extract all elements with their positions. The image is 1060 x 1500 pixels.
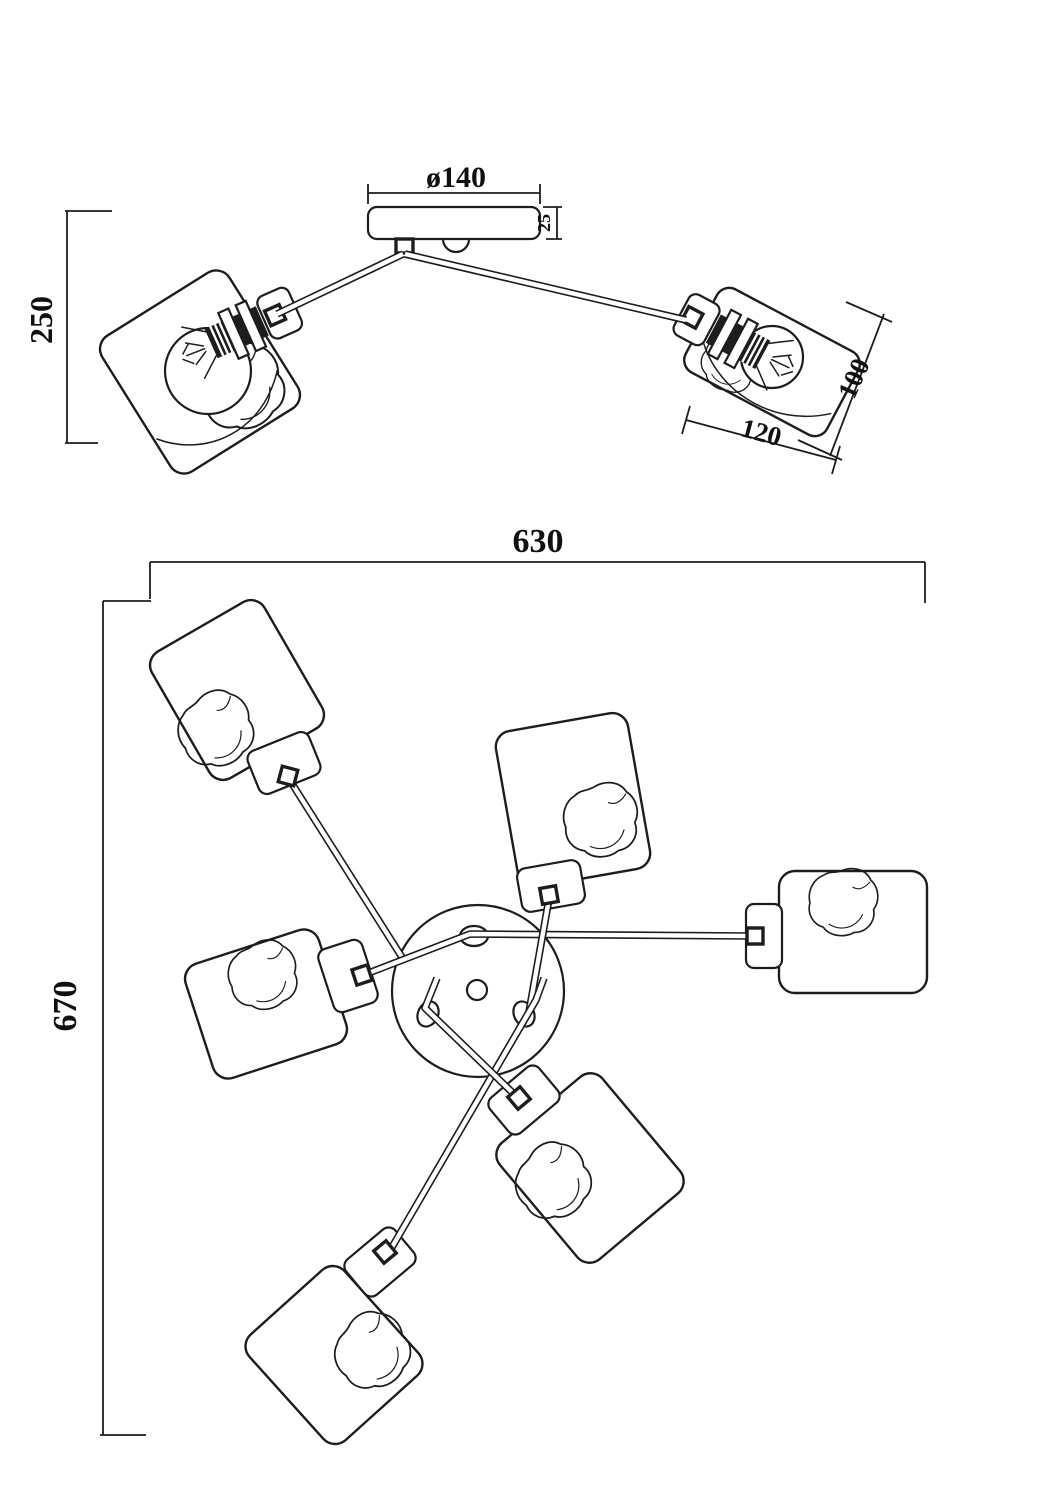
shade-plan-right — [779, 869, 927, 993]
arm-side-right — [405, 254, 686, 320]
arm-pivot — [747, 928, 763, 944]
shade-body — [779, 871, 927, 993]
dim-plan-height-label: 670 — [47, 981, 84, 1032]
plan-view: 630 670 — [47, 523, 927, 1451]
dim-canopy-diameter: ø140 — [368, 161, 540, 204]
dim-plan-width: 630 — [150, 523, 925, 603]
lamp-dimension-drawing: 250 ø140 25 — [0, 0, 1060, 1500]
dim-fixture-height-label: 250 — [23, 296, 59, 344]
dim-canopy-diameter-label: ø140 — [426, 161, 486, 194]
dim-ticks — [65, 211, 112, 443]
arm-pivot — [278, 766, 298, 786]
canopy-side — [368, 207, 540, 239]
shade-plan-bottom-left — [239, 1256, 433, 1450]
side-view: 250 ø140 25 — [23, 161, 892, 480]
canopy-bump — [443, 239, 469, 252]
dim-canopy-height-label: 25 — [534, 214, 554, 232]
stem-connector — [396, 239, 413, 253]
technical-drawing-page: 250 ø140 25 — [0, 0, 1060, 1500]
dim-fixture-height: 250 — [23, 211, 112, 443]
arm-pivot — [540, 886, 559, 905]
dim-plan-width-label: 630 — [513, 523, 564, 560]
dim-plan-height: 670 — [47, 601, 151, 1435]
dim-ext — [150, 562, 925, 603]
arm-side-left — [277, 254, 403, 314]
arm-pivot — [352, 965, 372, 985]
dim-ticks — [100, 601, 151, 1435]
